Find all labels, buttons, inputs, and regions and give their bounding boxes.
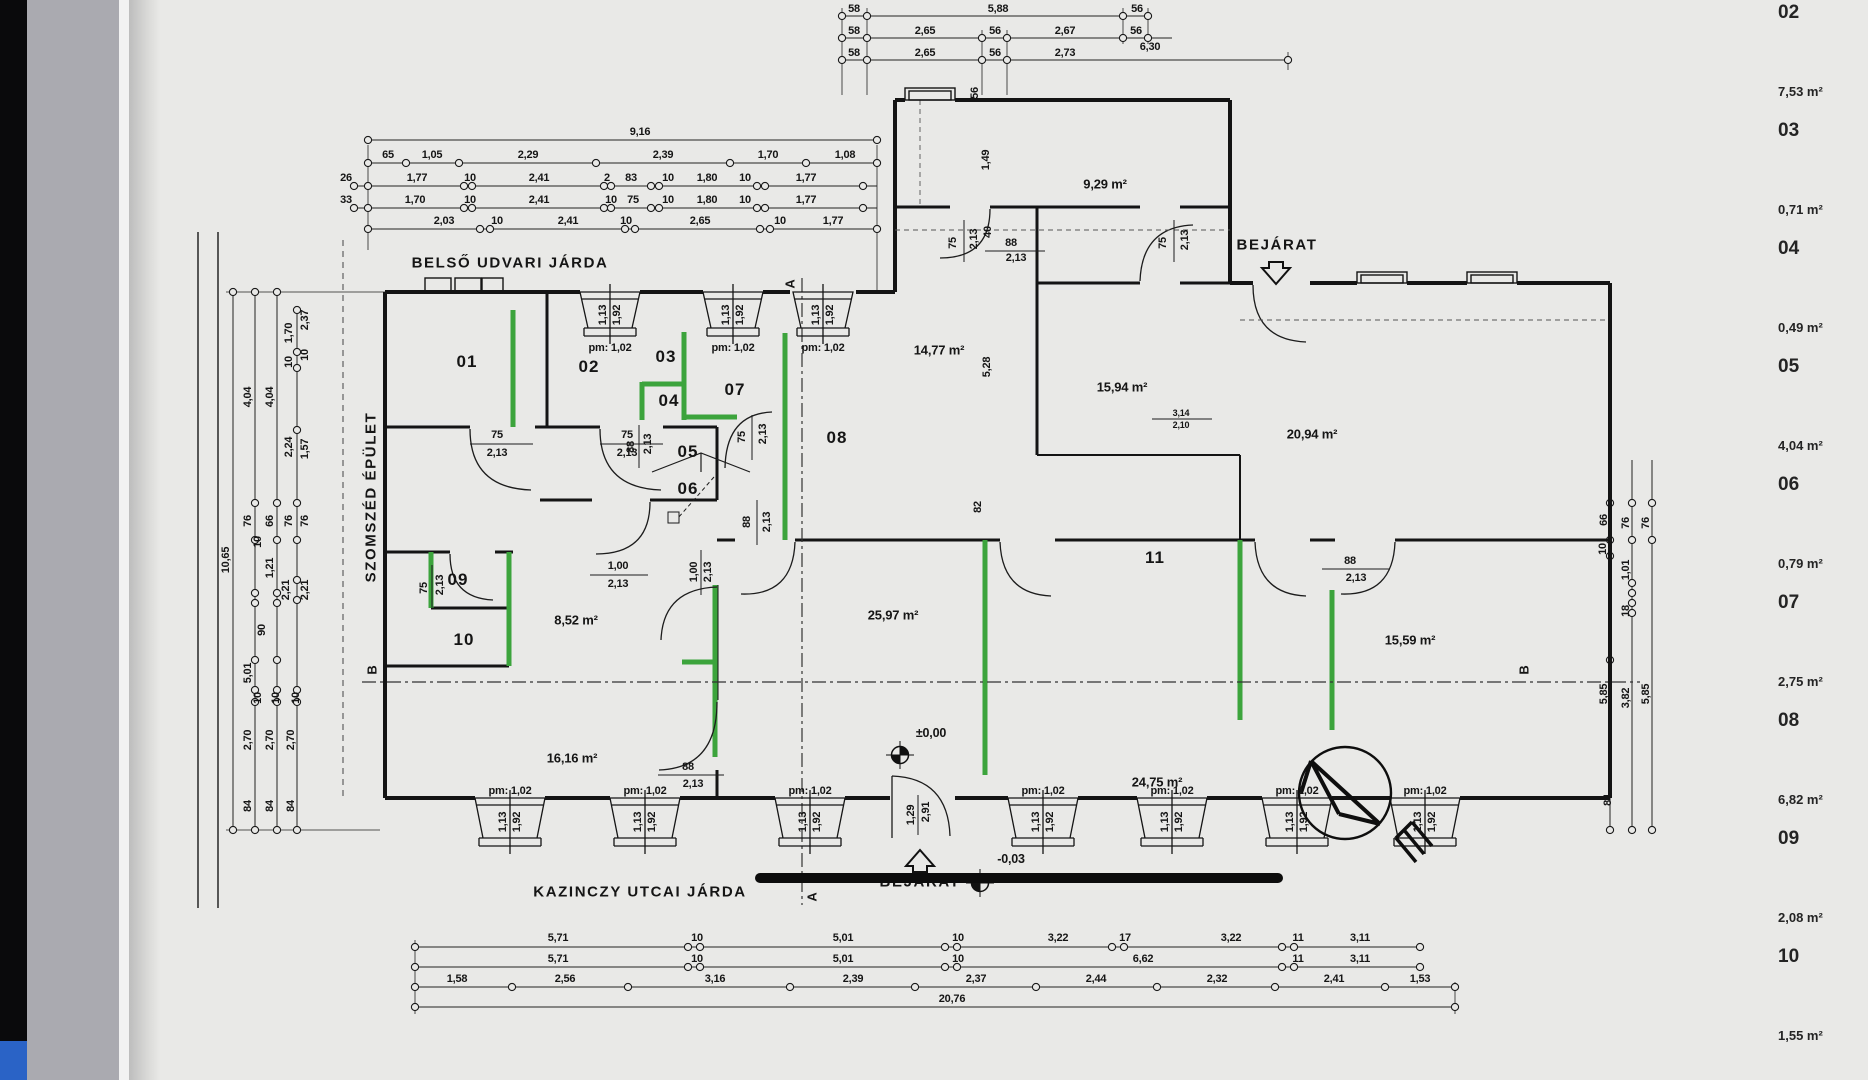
schedule-room-area: 4,04 m² (1778, 438, 1823, 453)
folding-door-symbol (652, 453, 750, 472)
construction-dashed (895, 100, 1605, 320)
schedule-room-area: 2,75 m² (1778, 674, 1823, 689)
schedule-room-area: 0,49 m² (1778, 320, 1823, 335)
interior-walls (385, 207, 1610, 798)
schedule-room-number: 03 (1778, 120, 1799, 142)
schedule-room-area: 1,55 m² (1778, 1028, 1823, 1043)
fraction-lines (432, 220, 1390, 835)
floorplan-svg (0, 0, 1868, 1080)
wall-bays (425, 88, 1517, 292)
scale-bar (755, 873, 1283, 883)
highlighted-walls (431, 310, 1332, 775)
schedule-room-area: 0,79 m² (1778, 556, 1823, 571)
schedule-room-number: 08 (1778, 710, 1799, 732)
schedule-room-number: 10 (1778, 946, 1799, 968)
app-panel-divider (119, 0, 129, 1080)
dimension-lines (226, 8, 1652, 1014)
entrance-arrow-down-icon (1262, 262, 1290, 284)
app-panel-gray[interactable] (27, 0, 119, 1080)
schedule-room-number: 02 (1778, 2, 1799, 24)
page-edge-shadow (129, 0, 160, 1080)
schedule-room-number: 06 (1778, 474, 1799, 496)
dimension-ticks (229, 12, 1655, 1010)
window-symbols (475, 284, 1460, 854)
detail-square (668, 512, 679, 523)
schedule-room-area: 2,08 m² (1778, 910, 1823, 925)
neighbor-building-line (198, 232, 218, 908)
schedule-room-area: 7,53 m² (1778, 84, 1823, 99)
app-sidebar-dark[interactable] (0, 0, 27, 1080)
schedule-room-number: 05 (1778, 356, 1799, 378)
level-marker-zero (886, 741, 914, 769)
schedule-room-number: 04 (1778, 238, 1799, 260)
entrance-arrow-up-icon (906, 850, 934, 872)
app-sidebar-blue-badge[interactable] (0, 1041, 27, 1080)
schedule-room-number: 07 (1778, 592, 1799, 614)
door-arcs (450, 209, 1395, 838)
schedule-room-area: 6,82 m² (1778, 792, 1823, 807)
room-schedule: 02 7,53 m² 03 0,71 m² 04 0,49 m² 05 4,04… (1770, 0, 1868, 1080)
schedule-room-area: 0,71 m² (1778, 202, 1823, 217)
dashed-arrow (678, 477, 714, 518)
schedule-room-number: 09 (1778, 828, 1799, 850)
outer-walls (385, 100, 1610, 798)
